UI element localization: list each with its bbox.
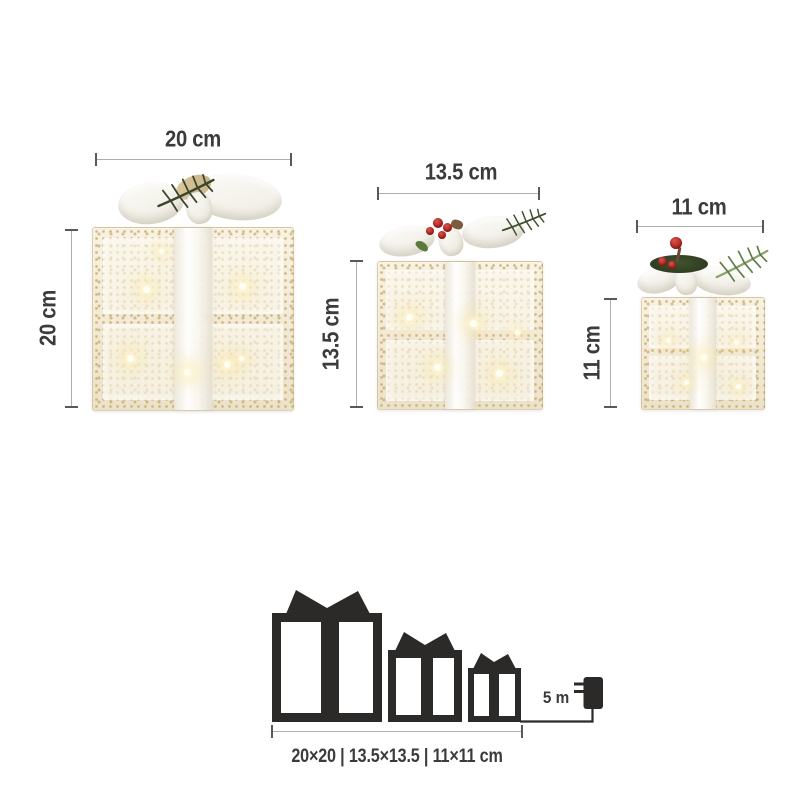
large-box-body [92,227,294,411]
medium-box-bow [377,208,542,262]
pictogram-total-width-dimension-line [271,725,523,738]
small-box-bow [635,235,780,299]
box-panel [472,270,534,330]
small-box-width-dimension-line [636,220,764,233]
led-glow [496,370,503,377]
pictogram-sizes-caption: 20×20 | 13.5×13.5 | 11×11 cm [291,746,502,768]
led-glow [127,355,134,362]
berry [426,227,434,235]
led-glow [515,330,520,335]
box-panel [103,324,183,400]
medium-box-width-dimension-line [377,187,540,200]
led-glow [684,380,689,385]
power-cord [520,709,593,722]
size-pictogram-graphic [255,585,620,735]
berry [658,257,667,266]
led-glow [700,354,707,361]
box-panel [386,270,448,330]
led-glow [736,384,741,389]
led-glow [224,361,231,368]
berry [670,237,682,249]
led-glow [734,340,739,345]
product-dimension-diagram: 20 cm 20 cm 13. [0,0,800,800]
led-glow [239,356,244,361]
box-panel [472,340,534,401]
small-box-height-label: 11 cm [579,326,606,381]
berry [443,223,452,232]
small-box-width-label: 11 cm [672,194,727,221]
large-box-width-label: 20 cm [165,126,221,153]
box-panel [649,306,693,348]
medium-box-width-label: 13.5 cm [425,159,497,186]
pictogram-bow-large [286,590,370,614]
box-panel [203,238,283,314]
box-panel [712,356,756,400]
medium-box-body [377,261,543,410]
berry [438,231,446,239]
large-box-width-dimension-line [95,153,292,166]
led-glow [406,314,413,321]
led-glow [159,249,164,254]
large-box-height-dimension-line [65,229,78,408]
small-box-height-dimension-line [604,298,617,408]
pine-sprig-icon [154,164,218,223]
pictogram-bow-small [473,653,516,669]
berry [433,218,443,228]
large-box-bow [118,170,293,230]
box-ribbon [445,262,475,409]
berry [668,261,676,269]
box-panel [649,356,693,400]
box-panel [103,238,183,314]
box-panel [203,324,283,400]
led-glow [239,283,246,290]
led-glow [184,369,191,376]
led-glow [666,338,671,343]
box-ribbon [174,228,212,410]
medium-box-height-dimension-line [350,260,363,408]
led-glow [470,320,477,327]
medium-box-height-label: 13.5 cm [318,298,345,370]
led-glow [143,286,150,293]
led-glow [434,364,441,371]
pine-sprig-icon [708,239,775,289]
power-plug-icon [584,677,604,709]
pictogram-bow-medium [395,632,455,651]
cable-length-label: 5 m [543,688,569,708]
large-box-height-label: 20 cm [35,290,62,346]
small-box-body [641,297,765,410]
